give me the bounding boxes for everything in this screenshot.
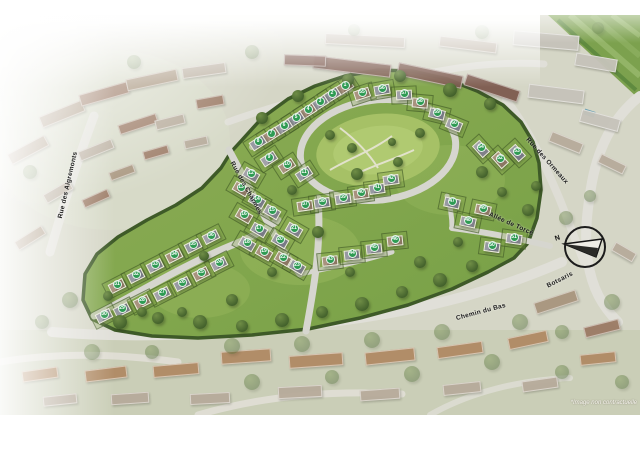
tree	[267, 267, 277, 277]
lot-number-badge: 33	[151, 260, 160, 269]
tree	[275, 313, 289, 327]
lot-number-badge: 53	[513, 147, 522, 156]
tree	[475, 25, 489, 39]
tree	[224, 338, 240, 354]
lot-number-badge: 26	[178, 278, 187, 287]
tree	[348, 24, 360, 36]
tree	[604, 294, 620, 310]
tree	[226, 294, 238, 306]
lot-number-badge: 36	[207, 231, 216, 240]
tree	[497, 187, 507, 197]
lot-number-badge: 12	[247, 169, 256, 178]
tree	[345, 267, 355, 277]
tree	[347, 143, 357, 153]
lot-number-badge: 27	[158, 288, 167, 297]
town-building	[111, 391, 150, 405]
tree	[415, 128, 425, 138]
lot-number-badge: 42	[387, 174, 396, 183]
lot-number-badge: 54	[477, 143, 486, 152]
lot-number-badge: 34	[170, 250, 179, 259]
lot-number-badge: 51	[510, 233, 519, 242]
tree	[256, 112, 268, 124]
tree	[294, 336, 310, 352]
lot-number-badge: 16	[240, 210, 249, 219]
lot-number-badge: 4	[304, 105, 313, 114]
disclaimer-text: *Image non contractuelle	[571, 400, 637, 406]
tree	[466, 260, 478, 272]
tree	[127, 55, 141, 69]
town-building	[278, 385, 323, 399]
lot-number-badge: 41	[373, 183, 382, 192]
tree	[292, 90, 304, 102]
lot-number-badge: 39	[339, 193, 348, 202]
tree	[388, 138, 396, 146]
lot-number-badge: 30	[100, 310, 109, 319]
town-building	[284, 54, 326, 66]
lot-number-badge: 29	[118, 304, 127, 313]
tree	[244, 374, 260, 390]
tree	[152, 312, 164, 324]
tree	[355, 297, 369, 311]
lot-number-badge: 56	[378, 84, 387, 93]
lot-number-badge: 2	[328, 89, 337, 98]
tree	[145, 345, 159, 359]
lot-number-badge: 37	[301, 200, 310, 209]
tree	[615, 375, 629, 389]
tree	[404, 366, 420, 382]
town-building	[190, 391, 231, 404]
tree	[113, 315, 127, 329]
tree	[325, 130, 335, 140]
lot-number-badge: 58	[416, 97, 425, 106]
lot-number-badge: 22	[279, 253, 288, 262]
lot-number-badge: 19	[260, 247, 269, 256]
tree	[433, 273, 447, 287]
tree	[35, 315, 49, 329]
tree	[584, 190, 596, 202]
lot-number-badge: 10	[283, 160, 292, 169]
lot-number-badge: 28	[138, 296, 147, 305]
lot-number-badge: 46	[391, 235, 400, 244]
lot-number-badge: 21	[290, 224, 299, 233]
lot-number-badge: 11	[300, 168, 309, 177]
lot-number-badge: 18	[243, 238, 252, 247]
lot-number-badge: 1	[341, 81, 350, 90]
lot-number-badge: 23	[293, 261, 302, 270]
tree	[522, 204, 534, 216]
tree	[394, 70, 406, 82]
tree	[236, 320, 248, 332]
tree	[351, 168, 363, 180]
tree	[137, 307, 147, 317]
lot-number-badge: 40	[357, 188, 366, 197]
tree	[484, 354, 500, 370]
tree	[414, 256, 426, 268]
lot-number-badge: 44	[348, 249, 357, 258]
tree	[312, 226, 324, 238]
lot-number-badge: 8	[254, 137, 263, 146]
tree	[287, 185, 297, 195]
lot-number-badge: 6	[280, 121, 289, 130]
lot-number-badge: 57	[400, 89, 409, 98]
lot-number-badge: 45	[370, 243, 379, 252]
lot-number-badge: 5	[292, 113, 301, 122]
tree	[23, 165, 37, 179]
lot-number-badge: 24	[215, 258, 224, 267]
town-building	[360, 387, 401, 401]
lot-number-badge: 52	[496, 154, 505, 163]
lot-number-badge: 31	[113, 280, 122, 289]
lot-number-badge: 25	[197, 268, 206, 277]
tree	[364, 332, 380, 348]
tree	[476, 166, 488, 178]
tree	[393, 157, 403, 167]
tree	[62, 292, 78, 308]
tree	[177, 307, 187, 317]
tree	[245, 45, 259, 59]
lot-number-badge: 38	[318, 197, 327, 206]
lot-number-badge: 32	[132, 270, 141, 279]
lot-number-badge: 60	[450, 119, 459, 128]
lot-number-badge: 47	[448, 197, 457, 206]
tree	[484, 98, 496, 110]
tree	[555, 365, 569, 379]
lot-number-badge: 35	[189, 240, 198, 249]
tree	[325, 370, 339, 384]
lot-number-badge: 59	[433, 108, 442, 117]
tree	[84, 344, 100, 360]
tree	[443, 83, 457, 97]
tree	[453, 237, 463, 247]
lot-number-badge: 7	[267, 129, 276, 138]
lot-number-badge: 17	[255, 224, 264, 233]
tree	[103, 291, 113, 301]
tree	[199, 251, 209, 261]
lot-number-badge: 3	[316, 97, 325, 106]
tree	[531, 181, 541, 191]
lot-number-badge: 49	[479, 204, 488, 213]
lot-number-badge: 50	[488, 241, 497, 250]
tree	[193, 315, 207, 329]
lot-number-badge: 55	[358, 88, 367, 97]
tree	[434, 324, 450, 340]
tree	[512, 314, 528, 330]
aerial-masterplan-screenshot: N 12345678910111213141516171819202122232…	[0, 0, 640, 470]
tree	[555, 325, 569, 339]
lot-number-badge: 43	[326, 255, 335, 264]
lot-number-badge: 15	[268, 206, 277, 215]
tree	[396, 286, 408, 298]
tree	[559, 211, 573, 225]
tree	[592, 22, 604, 34]
lot-number-badge: 20	[276, 235, 285, 244]
lot-number-badge: 9	[265, 153, 274, 162]
tree	[316, 306, 328, 318]
lot-number-badge: 48	[464, 216, 473, 225]
